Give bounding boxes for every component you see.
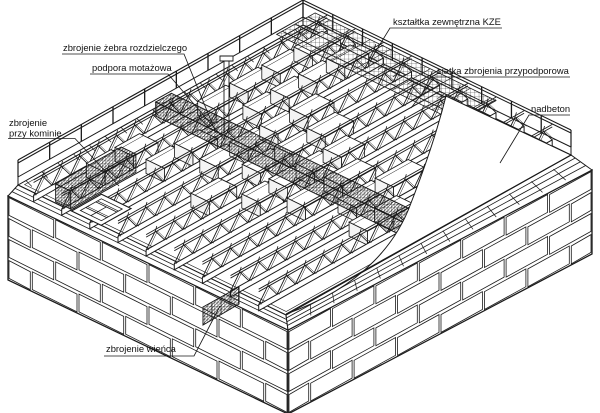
label-kze-edge-element: kształtka zewnętrzna KZE bbox=[393, 16, 501, 27]
label-assembly-support: podpora motażowa bbox=[92, 62, 173, 73]
label-chimney-reinforcement-line2: przy kominie bbox=[9, 128, 62, 139]
label-ring-beam-reinforcement: zbrojenie wieńca bbox=[106, 343, 177, 354]
construction-diagram: zbrojenie żebra rozdzielczego podpora mo… bbox=[0, 0, 600, 413]
label-distribution-rib-reinforcement: zbrojenie żebra rozdzielczego bbox=[63, 42, 187, 53]
label-support-mesh: siatka zbrojenia przypodporowa bbox=[437, 65, 570, 76]
technical-drawing-page: zbrojenie żebra rozdzielczego podpora mo… bbox=[0, 0, 600, 413]
label-chimney-reinforcement-line1: zbrojenie bbox=[9, 117, 47, 128]
label-concrete-topping: nadbeton bbox=[531, 103, 570, 114]
